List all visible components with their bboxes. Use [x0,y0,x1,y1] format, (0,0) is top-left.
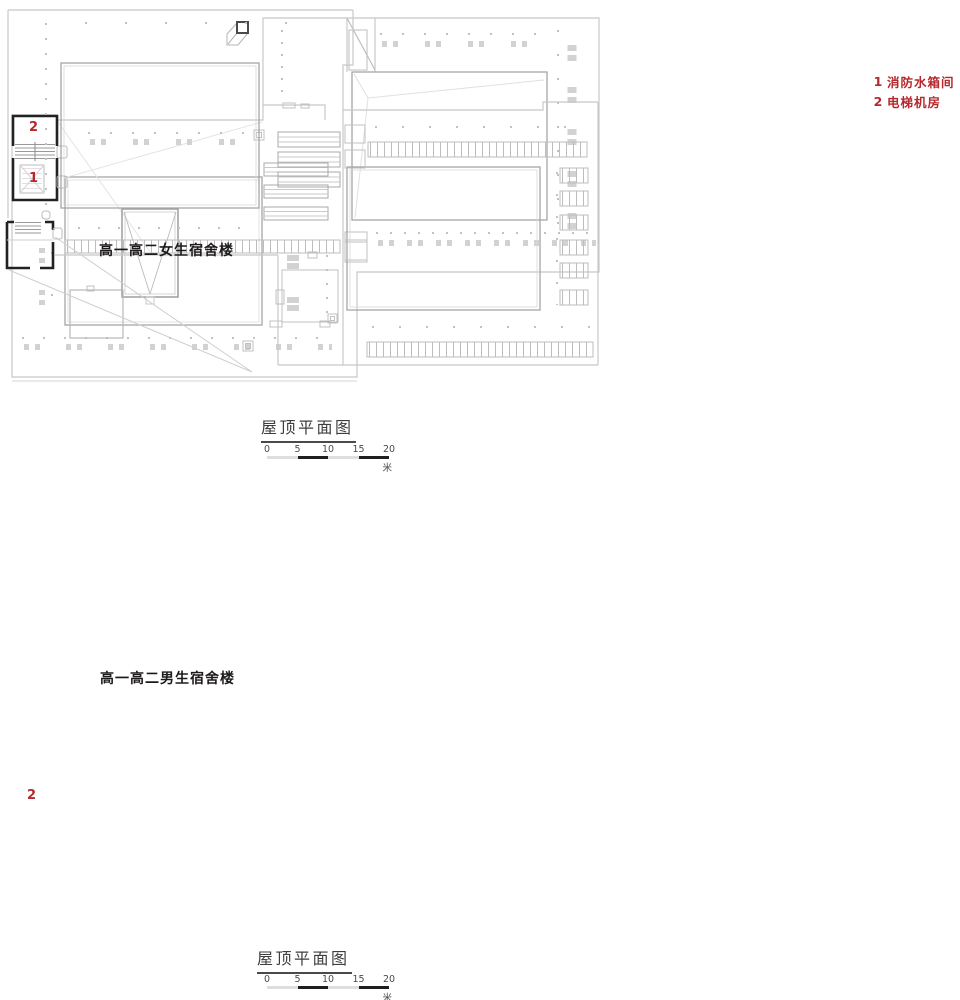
scale-ticks: 0 5 10 15 20 [267,444,389,455]
tick-10: 10 [322,974,334,985]
marker-elevator-room-top: 2 [29,121,38,134]
legend-item-elevator-room: 2 电梯机房 [869,91,955,111]
scale-unit: 米 [382,460,392,474]
trellis-side-segments [560,168,588,305]
boys-dorm-roof-plan-drawing [0,0,630,385]
legend-number: 2 [869,94,887,109]
scale-bar-bottom: 0 5 10 15 20 米 [267,974,389,989]
marker-elevator-room-bottom: 2 [27,789,36,802]
girls-dorm-label: 高一高二女生宿舍楼 [99,240,234,260]
scale-ticks: 0 5 10 15 20 [267,974,389,985]
tick-0: 0 [264,974,270,985]
cube-symbol [227,22,248,45]
scale-unit: 米 [382,990,392,1000]
stair-core [7,211,62,268]
legend-label: 电梯机房 [887,92,941,111]
tick-20: 20 [383,974,395,985]
roof-fixtures [276,125,367,322]
scale-bar-segments [267,986,389,989]
legend-label: 消防水箱间 [887,72,955,91]
right-wing-raised-roof [347,167,540,310]
tick-10: 10 [322,444,334,455]
scale-bar-segments [267,456,389,459]
boys-dorm-label: 高一高二男生宿舍楼 [100,668,235,688]
louver-strips [278,132,340,187]
legend: 1 消防水箱间 2 电梯机房 [869,71,955,111]
legend-number: 1 [869,74,887,89]
main-raised-roof [61,63,259,208]
tick-5: 5 [294,444,300,455]
tick-15: 15 [352,444,364,455]
roof-plan-title-top: 屋顶平面图 [261,414,356,443]
tick-15: 15 [352,974,364,985]
tick-0: 0 [264,444,270,455]
tick-5: 5 [294,974,300,985]
roof-plan-title-bottom: 屋顶平面图 [257,945,352,974]
roof-plan-sheet: 1 消防水箱间 2 电梯机房 高一高二女生宿舍楼 高一高二男生宿舍楼 2 1 2… [0,0,960,1000]
marker-fire-water-tank-top: 1 [29,172,38,185]
tick-20: 20 [383,444,395,455]
legend-item-fire-water-tank: 1 消防水箱间 [869,71,955,91]
roof-dot-rows [46,23,590,327]
scale-bar-top: 0 5 10 15 20 米 [267,444,389,459]
